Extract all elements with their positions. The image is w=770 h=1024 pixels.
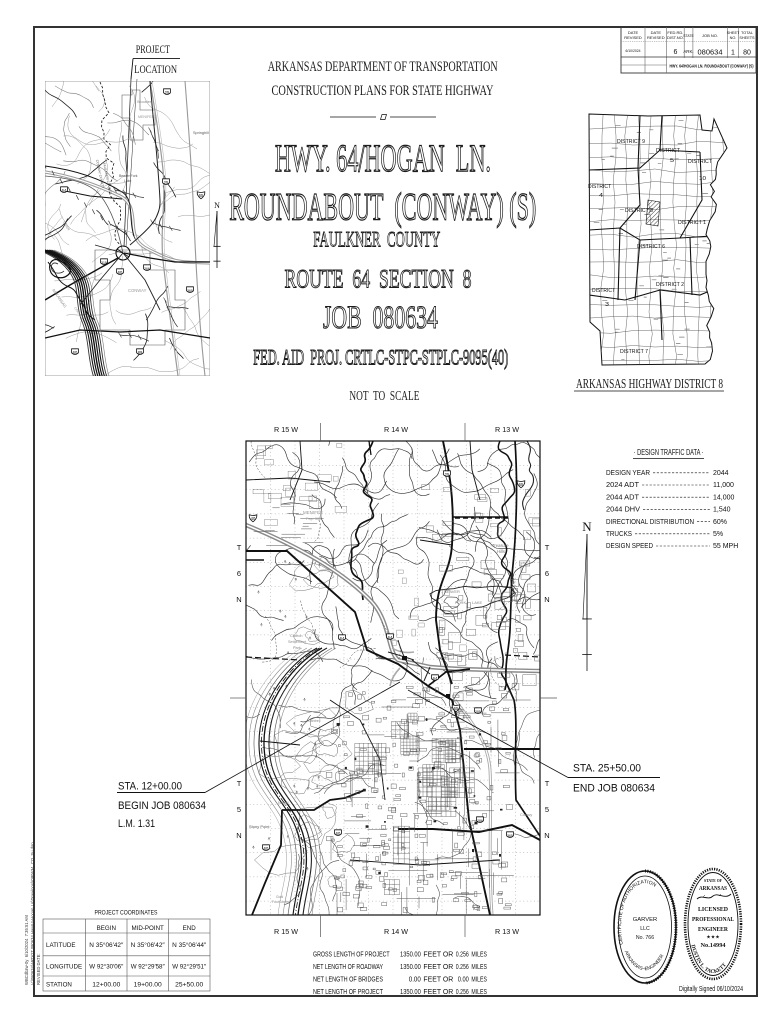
svg-text:5: 5 [670, 158, 674, 164]
svg-text:6: 6 [237, 569, 241, 578]
svg-text:N: N [214, 201, 220, 210]
svg-text:Pop. 302: Pop. 302 [306, 517, 321, 521]
svg-text:LOCATION: LOCATION [134, 64, 177, 76]
svg-text:DISTRICT 9: DISTRICT 9 [617, 139, 645, 145]
svg-text:REVISED: REVISED [624, 35, 642, 40]
svg-text:0.256: 0.256 [456, 987, 469, 996]
svg-text:ROUNDABOUT (CONWAY) (S): ROUNDABOUT (CONWAY) (S) [229, 185, 536, 229]
svg-text:14,000: 14,000 [713, 494, 735, 501]
svg-text:N: N [236, 831, 241, 840]
svg-text:64: 64 [62, 188, 67, 193]
svg-text:LICENSED: LICENSED [698, 906, 728, 913]
svg-text:NET LENGTH OF PROJECT: NET LENGTH OF PROJECT [313, 987, 383, 996]
svg-text:TRUCKS: TRUCKS [606, 531, 632, 538]
svg-text:FED. AID PROJ. CRTLC-STPC-STP: FED. AID PROJ. CRTLC-STPC-STPLC-9095(40) [253, 344, 508, 369]
svg-text:60: 60 [118, 270, 123, 275]
svg-text:R 14 W: R 14 W [384, 425, 409, 434]
svg-text:R 13 W: R 13 W [495, 927, 520, 936]
svg-text:64: 64 [388, 635, 393, 640]
svg-text:2044: 2044 [713, 470, 729, 477]
svg-text:FEET OR: FEET OR [423, 987, 453, 996]
svg-text:25: 25 [164, 180, 169, 185]
svg-text:DISTRICT 2: DISTRICT 2 [656, 282, 684, 288]
svg-text:FAULKNER COUNTY: FAULKNER COUNTY [313, 226, 440, 251]
svg-text:WBCdbzw-0y 6/10/2024 7:35:51: WBCdbzw-0y 6/10/2024 7:35:51 AM [24, 915, 29, 985]
svg-text:80: 80 [743, 50, 751, 57]
svg-text:SHEET: SHEET [727, 31, 740, 35]
svg-text:NET LENGTH OF ROADWAY: NET LENGTH OF ROADWAY [313, 962, 383, 971]
svg-text:PROJECT: PROJECT [136, 44, 170, 56]
svg-text:SHEETS: SHEETS [739, 36, 755, 40]
svg-text:W 92°30′06″: W 92°30′06″ [89, 964, 124, 971]
svg-text:N: N [582, 519, 592, 534]
svg-text:LAKE: LAKE [472, 600, 483, 605]
svg-text:Conwy: Conwy [520, 812, 532, 817]
svg-text:60: 60 [264, 846, 269, 851]
svg-text:W 92°29′51″: W 92°29′51″ [172, 964, 207, 971]
svg-text:ARKANSAS DEPARTMENT OF TRANSPO: ARKANSAS DEPARTMENT OF TRANSPORTATION [268, 59, 498, 75]
svg-text:T: T [545, 779, 550, 788]
svg-text:5: 5 [237, 805, 241, 814]
svg-text:T: T [545, 543, 550, 552]
svg-text:60: 60 [336, 831, 341, 836]
svg-text:080634: 080634 [698, 50, 723, 57]
svg-text:65: 65 [454, 706, 459, 711]
svg-text:FORK: FORK [455, 600, 466, 605]
svg-text:Cantrell: Cantrell [308, 719, 321, 723]
svg-text:FEET OR: FEET OR [423, 962, 453, 971]
svg-text:89: 89 [138, 350, 143, 355]
svg-text:MENIFEE: MENIFEE [138, 115, 155, 119]
svg-text:HWY. 64/HOGAN LN.: HWY. 64/HOGAN LN. [275, 136, 491, 180]
svg-text:0.00: 0.00 [409, 975, 421, 984]
svg-text:DISTRICT 7: DISTRICT 7 [620, 349, 648, 355]
svg-text:END: END [183, 925, 197, 932]
svg-text:STA. 12+00.00: STA. 12+00.00 [118, 781, 182, 793]
svg-text:19+00.00: 19+00.00 [134, 982, 163, 989]
svg-text:DISTRICT: DISTRICT [592, 288, 616, 294]
svg-text:JOB NO.: JOB NO. [702, 33, 718, 38]
svg-text:FEET OR: FEET OR [423, 975, 453, 984]
svg-text:NOT TO SCALE: NOT TO SCALE [349, 389, 419, 404]
svg-text:R 15 W: R 15 W [274, 927, 299, 936]
svg-text:GROSS LENGTH OF PROJECT: GROSS LENGTH OF PROJECT [313, 950, 390, 959]
svg-text:Hills: Hills [497, 549, 505, 554]
svg-text:STATION: STATION [46, 982, 72, 989]
svg-text:25: 25 [445, 472, 450, 477]
svg-text:DISTRICT 1: DISTRICT 1 [678, 220, 706, 226]
svg-text:1350.00: 1350.00 [400, 950, 421, 959]
svg-text:3: 3 [605, 302, 609, 308]
svg-text:365: 365 [507, 834, 513, 838]
svg-text:0.00: 0.00 [458, 975, 469, 984]
svg-text:64: 64 [433, 676, 438, 681]
svg-text:R 14 W: R 14 W [384, 927, 409, 936]
svg-text:N 35°06′42″: N 35°06′42″ [131, 942, 166, 949]
svg-text:STA. 25+50.00: STA. 25+50.00 [573, 763, 641, 775]
svg-text:LATITUDE: LATITUDE [46, 942, 75, 949]
svg-text:1: 1 [731, 50, 735, 57]
svg-text:V:\080634\ARDOT 080634 Hwy64-H: V:\080634\ARDOT 080634 Hwy64-Hogan Ln\Dr… [30, 842, 35, 985]
svg-text:DISTRICT: DISTRICT [688, 159, 713, 165]
svg-text:2044 ADT: 2044 ADT [606, 494, 640, 501]
svg-text:N: N [544, 595, 549, 604]
svg-text:R 13 W: R 13 W [495, 425, 520, 434]
svg-text:Cadron: Cadron [290, 634, 302, 638]
svg-text:MILES: MILES [471, 987, 487, 996]
svg-text:TOTAL: TOTAL [741, 31, 753, 35]
svg-text:12+00.00: 12+00.00 [92, 982, 121, 989]
svg-text:REVISED DATE:: REVISED DATE: [36, 953, 41, 985]
svg-text:N: N [236, 595, 241, 604]
svg-text:1350.00: 1350.00 [400, 987, 421, 996]
svg-text:★★★: ★★★ [706, 935, 720, 941]
svg-text:ENGINEER: ENGINEER [698, 926, 728, 933]
svg-text:65: 65 [519, 482, 524, 487]
svg-text:6: 6 [545, 569, 549, 578]
svg-text:DIRECTIONAL DISTRIBUTION: DIRECTIONAL DISTRIBUTION [606, 519, 694, 526]
svg-text:L.M. 1.31: L.M. 1.31 [118, 818, 155, 830]
svg-text:GARVER: GARVER [633, 917, 657, 923]
svg-text:Springhill: Springhill [193, 131, 209, 135]
svg-text:65: 65 [199, 193, 204, 198]
svg-text:1350.00: 1350.00 [400, 962, 421, 971]
svg-text:STATE: STATE [683, 34, 694, 38]
svg-text:2024 ADT: 2024 ADT [606, 482, 640, 489]
svg-text:2044 DHV: 2044 DHV [606, 507, 640, 514]
svg-text:4: 4 [599, 193, 603, 199]
svg-text:Lake: Lake [124, 179, 131, 183]
svg-text:11,000: 11,000 [713, 482, 734, 489]
svg-text:365: 365 [187, 289, 193, 293]
svg-text:DISTRICT 6: DISTRICT 6 [637, 244, 665, 250]
svg-text:LONGITUDE: LONGITUDE [46, 964, 82, 971]
svg-text:0.256: 0.256 [456, 962, 469, 971]
svg-text:BEGIN JOB 080634: BEGIN JOB 080634 [118, 800, 206, 812]
svg-text:266: 266 [144, 267, 150, 271]
svg-text:BEGIN: BEGIN [97, 925, 116, 932]
svg-text:5: 5 [545, 805, 549, 814]
svg-text:W 92°29′58″: W 92°29′58″ [131, 964, 166, 971]
svg-text:N 35°06′44″: N 35°06′44″ [172, 942, 207, 949]
svg-text:BEAVER: BEAVER [444, 589, 460, 594]
svg-text:LLC: LLC [640, 926, 650, 932]
svg-text:DIST.NO.: DIST.NO. [667, 35, 684, 40]
svg-text:FourCorner: FourCorner [272, 900, 290, 904]
svg-text:40: 40 [251, 516, 256, 521]
svg-text:ARKANSAS–ENGINEER: ARKANSAS–ENGINEER [623, 950, 666, 972]
svg-text:60: 60 [73, 350, 78, 355]
svg-text:Settlement: Settlement [288, 640, 307, 644]
svg-text:286: 286 [477, 819, 483, 823]
svg-text:MID-POINT: MID-POINT [132, 925, 165, 932]
svg-text:MENIFEE: MENIFEE [303, 510, 323, 515]
svg-text:60%: 60% [713, 519, 727, 526]
svg-text:5%: 5% [713, 531, 723, 538]
svg-text:N: N [544, 831, 549, 840]
svg-text:Treasure: Treasure [492, 543, 509, 548]
svg-text:DISTRICT 8: DISTRICT 8 [625, 208, 653, 214]
svg-text:T: T [237, 543, 242, 552]
svg-text:DISTRICT: DISTRICT [656, 148, 681, 154]
svg-text:6/10/2024: 6/10/2024 [625, 49, 640, 53]
svg-text:JOB 080634: JOB 080634 [323, 300, 438, 336]
svg-text:Wooster: Wooster [137, 100, 152, 104]
svg-text:285: 285 [475, 710, 481, 714]
svg-text:END JOB 080634: END JOB 080634 [573, 783, 655, 795]
svg-text:55 MPH: 55 MPH [713, 543, 738, 550]
svg-text:DISTRICT: DISTRICT [588, 184, 612, 190]
svg-text:10: 10 [699, 176, 706, 182]
svg-text:· DESIGN TRAFFIC DATA ·: · DESIGN TRAFFIC DATA · [634, 448, 704, 457]
svg-text:25: 25 [165, 90, 170, 95]
svg-text:MILES: MILES [471, 950, 487, 959]
svg-text:Gold: Gold [276, 895, 283, 899]
svg-text:Beaver Fork: Beaver Fork [119, 174, 138, 178]
svg-text:T: T [237, 779, 242, 788]
svg-text:Stony Point: Stony Point [249, 824, 270, 829]
svg-text:1,540: 1,540 [713, 507, 731, 514]
svg-text:25+50.00: 25+50.00 [175, 982, 204, 989]
svg-text:319: 319 [101, 261, 107, 265]
svg-text:6: 6 [673, 49, 677, 56]
svg-text:DESIGN SPEED: DESIGN SPEED [606, 543, 653, 550]
svg-text:0.256: 0.256 [456, 950, 469, 959]
svg-text:MILES: MILES [471, 975, 487, 984]
svg-text:ROUTE 64 SECTION 8: ROUTE 64 SECTION 8 [285, 265, 472, 294]
svg-text:MILES: MILES [471, 962, 487, 971]
svg-text:ARK.: ARK. [683, 49, 693, 54]
svg-text:N 35°06′42″: N 35°06′42″ [89, 942, 124, 949]
svg-text:ARKANSAS HIGHWAY DISTRICT 8: ARKANSAS HIGHWAY DISTRICT 8 [576, 377, 723, 392]
svg-text:HWY. 64/HOGAN LN. ROUNDABOUT (: HWY. 64/HOGAN LN. ROUNDABOUT (CONWAY) (S… [670, 64, 754, 69]
svg-text:CONSTRUCTION PLANS FOR STATE H: CONSTRUCTION PLANS FOR STATE HIGHWAY [272, 83, 494, 99]
svg-text:PROJECT COORDINATES: PROJECT COORDINATES [95, 910, 158, 917]
svg-text:ARKANSAS: ARKANSAS [699, 886, 727, 892]
svg-text:Nogal: Nogal [278, 800, 289, 805]
svg-text:R 15 W: R 15 W [274, 425, 299, 434]
svg-text:REVISED: REVISED [647, 35, 665, 40]
svg-text:No. 766: No. 766 [636, 935, 654, 941]
svg-text:No.14994: No.14994 [701, 942, 726, 949]
svg-text:PROFESSIONAL: PROFESSIONAL [692, 916, 734, 923]
svg-text:DESIGN YEAR: DESIGN YEAR [606, 470, 650, 477]
svg-text:NO.: NO. [730, 36, 737, 40]
svg-text:Park: Park [293, 646, 301, 650]
svg-text:CONWAY: CONWAY [128, 288, 147, 293]
svg-text:STATE OF: STATE OF [704, 878, 722, 883]
svg-text:Digitally Signed 06/10/2024: Digitally Signed 06/10/2024 [679, 984, 743, 993]
svg-text:64: 64 [340, 636, 345, 641]
svg-text:NET LENGTH OF BRIDGES: NET LENGTH OF BRIDGES [313, 975, 383, 984]
svg-text:FEET OR: FEET OR [423, 950, 453, 959]
